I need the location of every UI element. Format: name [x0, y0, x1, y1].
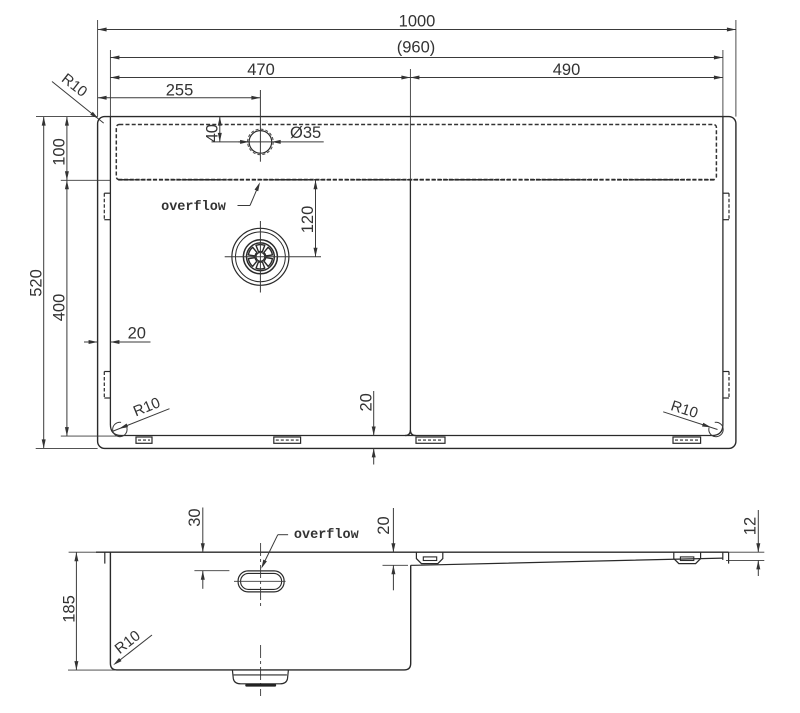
svg-text:40: 40	[203, 124, 221, 142]
svg-text:470: 470	[247, 61, 275, 79]
svg-text:R10: R10	[58, 70, 90, 100]
svg-text:20: 20	[128, 324, 146, 342]
svg-text:400: 400	[51, 294, 69, 322]
svg-text:overflow: overflow	[294, 528, 360, 543]
svg-text:185: 185	[60, 595, 78, 623]
svg-text:30: 30	[186, 508, 204, 526]
svg-text:R10: R10	[112, 627, 144, 657]
svg-text:255: 255	[166, 81, 194, 99]
svg-text:(960): (960)	[397, 39, 436, 57]
svg-text:520: 520	[27, 269, 45, 297]
svg-text:overflow: overflow	[161, 200, 227, 215]
svg-text:12: 12	[742, 517, 760, 535]
svg-text:490: 490	[553, 61, 581, 79]
svg-text:R10: R10	[131, 394, 163, 420]
svg-text:1000: 1000	[399, 12, 436, 30]
svg-text:Ø35: Ø35	[290, 124, 321, 142]
svg-text:20: 20	[375, 516, 393, 534]
svg-text:20: 20	[357, 393, 375, 411]
svg-text:120: 120	[299, 206, 317, 234]
svg-text:100: 100	[51, 138, 69, 166]
svg-text:R10: R10	[669, 397, 700, 422]
